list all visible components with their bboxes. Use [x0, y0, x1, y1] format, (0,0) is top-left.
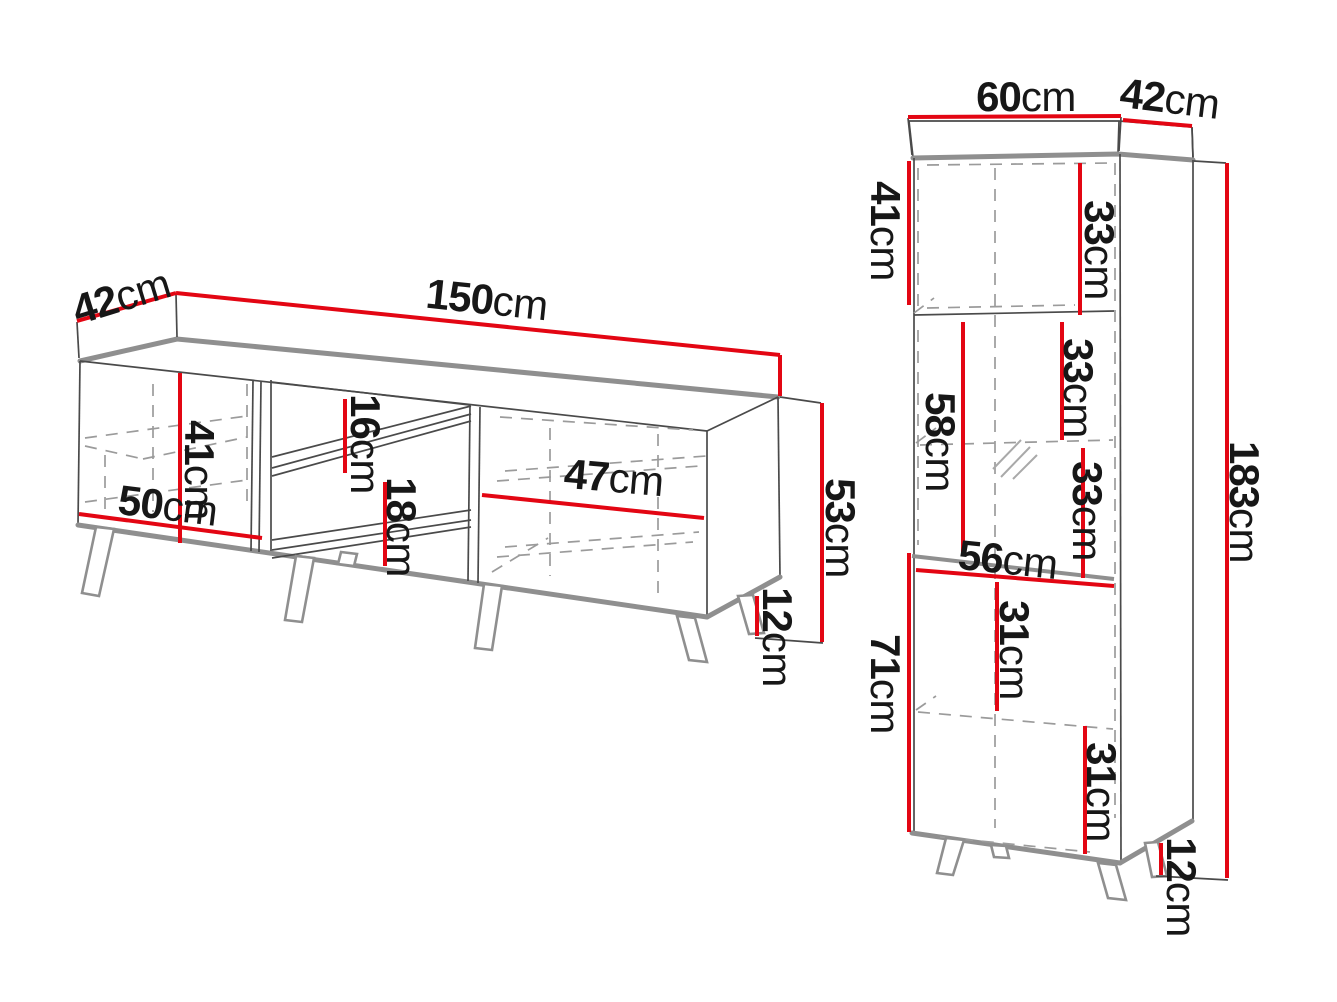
- tv-back-leg: [338, 552, 357, 566]
- hidden-edge-line: [505, 532, 699, 547]
- cabinet-leg-height-label: 12cm: [1159, 837, 1206, 937]
- tv-stand-drawing: 42cm 150cm 41cm 50cm 16cm 18cm 47cm 53cm…: [66, 259, 864, 687]
- cabinet-total-height-label: 183cm: [1222, 441, 1269, 563]
- extension-line: [176, 294, 177, 337]
- tv-divider-line: [478, 407, 480, 583]
- tv-leg: [285, 556, 314, 622]
- tv-leg-height-label: 12cm: [755, 587, 802, 687]
- cabinet-leg: [1098, 863, 1126, 900]
- diagram-svg: 42cm 150cm 41cm 50cm 16cm 18cm 47cm 53cm…: [0, 0, 1337, 1002]
- extension-line: [1194, 161, 1226, 163]
- tv-body-height-label: 53cm: [818, 478, 865, 578]
- glass-shine-mark: [1001, 447, 1030, 477]
- hidden-edge-line: [497, 542, 693, 557]
- hidden-edge-line: [927, 163, 1113, 165]
- tv-divider-line: [251, 381, 253, 551]
- cabinet-top-compartment-label: 33cm: [1077, 200, 1124, 300]
- tv-divider-line: [259, 382, 261, 552]
- glass-shine-mark: [993, 440, 1021, 469]
- cabinet-glass-section-height-label: 58cm: [918, 392, 965, 492]
- cabinet-depth-label: 42cm: [1118, 69, 1223, 128]
- cabinet-middle-compartment-lower-label: 33cm: [1065, 461, 1112, 561]
- extension-line: [1192, 128, 1193, 157]
- tv-niche-floor-underside-edge: [272, 527, 471, 558]
- cabinet-middle-compartment-upper-label: 33cm: [1056, 338, 1103, 438]
- tv-leg: [677, 616, 707, 662]
- tv-depth-label: 42cm: [66, 259, 175, 333]
- extension-line: [780, 397, 821, 403]
- cabinet-top-front-edge: [913, 154, 1193, 160]
- cabinet-lower-compartment-upper-label: 31cm: [992, 600, 1039, 700]
- hidden-depth-line: [916, 696, 936, 710]
- tv-lower-shelf-gap-label: 18cm: [379, 477, 426, 577]
- glass-shine-mark: [1013, 455, 1037, 479]
- tv-top-right-edge: [707, 397, 778, 431]
- cabinet-top-door-height-label: 41cm: [863, 181, 910, 281]
- cabinet-leg: [937, 838, 964, 875]
- tv-leg: [82, 527, 114, 596]
- tv-divider-line: [468, 406, 470, 581]
- cabinet-divider-line: [914, 311, 1114, 315]
- cabinet-lower-compartment-lower-label: 31cm: [1079, 742, 1126, 842]
- cabinet-width-label: 60cm: [976, 73, 1076, 120]
- hidden-edge-line: [492, 538, 548, 572]
- cabinet-back-leg: [991, 845, 1009, 858]
- tv-top-back-edge: [80, 339, 778, 397]
- hidden-depth-line: [914, 298, 934, 313]
- cabinet-bottom-door-height-label: 71cm: [863, 634, 910, 734]
- hidden-edge-line: [85, 446, 143, 459]
- hidden-edge-line: [927, 305, 1075, 308]
- tall-cabinet-drawing: 60cm 42cm 41cm 33cm 58cm 33cm 33cm 56cm …: [863, 69, 1269, 937]
- tv-left-edge: [78, 361, 80, 525]
- tv-right-door-width-label: 47cm: [562, 449, 665, 505]
- tv-back-right-edge: [778, 397, 780, 577]
- tv-leg: [475, 584, 502, 650]
- furniture-dimension-diagram: 42cm 150cm 41cm 50cm 16cm 18cm 47cm 53cm…: [0, 0, 1337, 1002]
- cabinet-shelf-width-label: 56cm: [956, 530, 1060, 587]
